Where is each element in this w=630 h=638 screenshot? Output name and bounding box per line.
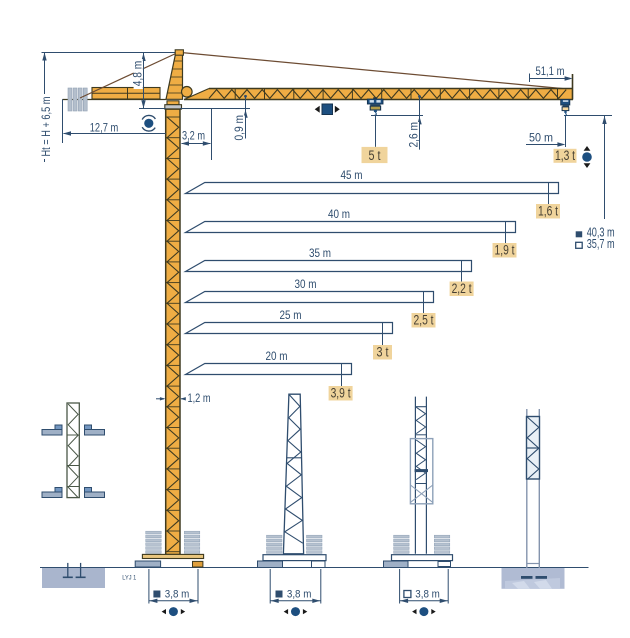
svg-text:3 t: 3 t (377, 345, 389, 360)
svg-text:2,2 t: 2,2 t (452, 281, 472, 296)
svg-text:51,1 m: 51,1 m (536, 66, 565, 78)
svg-text:Ht = H + 6,5 m: Ht = H + 6,5 m (41, 97, 53, 157)
svg-text:1,6 t: 1,6 t (538, 204, 558, 219)
svg-text:35 m: 35 m (309, 248, 331, 260)
svg-text:2,5 t: 2,5 t (414, 313, 434, 328)
svg-text:2,6 m: 2,6 m (408, 122, 420, 148)
svg-text:25 m: 25 m (280, 310, 302, 322)
svg-text:1,3 t: 1,3 t (555, 148, 575, 163)
svg-text:12,7 m: 12,7 m (90, 123, 119, 135)
svg-text:20 m: 20 m (266, 351, 288, 363)
svg-text:0,9 m: 0,9 m (234, 115, 246, 141)
svg-text:35,7 m: 35,7 m (587, 236, 615, 251)
svg-text:3,8 m: 3,8 m (165, 589, 190, 601)
svg-text:LYJ 1: LYJ 1 (122, 575, 137, 581)
svg-text:30 m: 30 m (295, 279, 317, 291)
svg-text:4,8 m: 4,8 m (132, 61, 144, 87)
svg-text:50 m: 50 m (529, 132, 553, 144)
svg-text:3,2 m: 3,2 m (182, 131, 205, 143)
svg-text:3,8 m: 3,8 m (415, 589, 440, 601)
svg-text:40 m: 40 m (328, 209, 350, 221)
svg-text:5 t: 5 t (369, 148, 381, 163)
svg-text:1,9 t: 1,9 t (495, 243, 515, 258)
svg-text:1,2 m: 1,2 m (188, 393, 211, 405)
svg-text:45 m: 45 m (341, 170, 363, 182)
svg-text:3,8 m: 3,8 m (287, 589, 312, 601)
svg-text:3,9 t: 3,9 t (331, 386, 351, 401)
